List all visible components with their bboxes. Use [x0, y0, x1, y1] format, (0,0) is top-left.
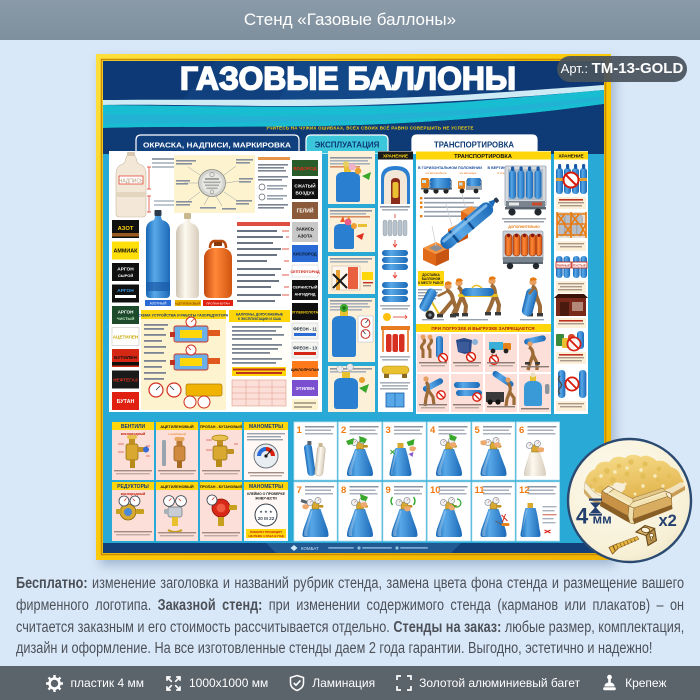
svg-text:кислородный: кислородный	[121, 492, 146, 496]
svg-text:ВЕНТИЛИ: ВЕНТИЛИ	[121, 424, 146, 430]
svg-text:МАНОМЕТРЫ: МАНОМЕТРЫ	[249, 424, 283, 430]
svg-text:ФРЕОН - 13: ФРЕОН - 13	[293, 346, 317, 351]
svg-text:АРГОН: АРГОН	[117, 288, 134, 294]
svg-text:ВОДОРОД: ВОДОРОД	[293, 166, 317, 171]
svg-text:20 III 22: 20 III 22	[258, 516, 275, 521]
svg-text:В ГОРИЗОНТАЛЬНОМ ПОЛОЖЕНИИ: В ГОРИЗОНТАЛЬНОМ ПОЛОЖЕНИИ	[418, 166, 482, 170]
svg-text:АРГОН: АРГОН	[118, 310, 134, 315]
svg-text:1: 1	[297, 425, 303, 436]
svg-text:с мембраной: с мембраной	[168, 432, 186, 436]
svg-text:ЧИСТЫЙ: ЧИСТЫЙ	[117, 316, 135, 321]
svg-text:ПРОПАН-БУТАН: ПРОПАН-БУТАН	[206, 302, 229, 306]
svg-text:ПРИ ПОГРУЗКЕ И ВЫГРУЗКЕ ЗАПРЕЩ: ПРИ ПОГРУЗКЕ И ВЫГРУЗКЕ ЗАПРЕЩАЕТСЯ	[431, 326, 534, 331]
svg-text:ЗАКИСЬ: ЗАКИСЬ	[296, 227, 314, 232]
svg-text:УГЛЕКИСЛОТА: УГЛЕКИСЛОТА	[292, 311, 319, 315]
svg-text:АРГОН: АРГОН	[117, 267, 134, 273]
svg-text:СХЕМА УСТРОЙСТВА И РАБОТЫ ГАЗО: СХЕМА УСТРОЙСТВА И РАБОТЫ ГАЗОРЕДУКТОРА	[138, 314, 229, 318]
svg-text:ОКРАСКА, НАДПИСИ, МАРКИРОВКА: ОКРАСКА, НАДПИСИ, МАРКИРОВКА	[143, 141, 292, 150]
svg-text:ХРАНЕНИЕ: ХРАНЕНИЕ	[383, 154, 408, 159]
svg-text:К ЭКСПЛУАТАЦИИ И США: К ЭКСПЛУАТАЦИИ И США	[238, 317, 282, 321]
svg-text:2: 2	[341, 425, 346, 436]
svg-text:ПУСТЫЕ: ПУСТЫЕ	[573, 264, 586, 268]
svg-text:ГАЗОВЫЕ БАЛЛОНЫ: ГАЗОВЫЕ БАЛЛОНЫ	[180, 61, 516, 97]
svg-text:НАДПИСЬ: НАДПИСЬ	[119, 179, 144, 185]
svg-text:КИСЛОРОД: КИСЛОРОД	[293, 252, 317, 257]
svg-text:КЛЕЙМО О ПРОВЕРКЕ: КЛЕЙМО О ПРОВЕРКЕ	[247, 492, 285, 496]
svg-text:АММИАК: АММИАК	[114, 249, 139, 255]
svg-text:ЭКСПЛУАТАЦИЯ: ЭКСПЛУАТАЦИЯ	[315, 141, 380, 150]
svg-text:ВОЗДУХ: ВОЗДУХ	[296, 191, 316, 196]
svg-text:7: 7	[297, 485, 302, 496]
svg-text:3: 3	[386, 425, 391, 436]
svg-text:СЖАТЫЙ: СЖАТЫЙ	[294, 182, 315, 189]
svg-text:РЕДУКТОРЫ: РЕДУКТОРЫ	[117, 484, 149, 490]
svg-text:ПОЛНЫЕ: ПОЛНЫЕ	[557, 264, 571, 268]
svg-text:ТРАНСПОРТИРОВКА: ТРАНСПОРТИРОВКА	[454, 154, 512, 160]
svg-text:ГЕЛИЙ: ГЕЛИЙ	[297, 207, 314, 215]
svg-text:УЧИТЕСЬ НА ЧУЖИХ ОШИБКАХ, ВСЕХ: УЧИТЕСЬ НА ЧУЖИХ ОШИБКАХ, ВСЕХ СВОИХ ВСЁ…	[266, 126, 473, 131]
svg-text:ФРЕОН - 11: ФРЕОН - 11	[293, 327, 317, 332]
svg-text:БАЛЛОНЫ, ДОПУСКАЕМЫЕ: БАЛЛОНЫ, ДОПУСКАЕМЫЕ	[236, 313, 284, 317]
svg-text:ЦИКЛОПРОПАН: ЦИКЛОПРОПАН	[291, 368, 320, 372]
svg-text:К МЕСТУ РАБОТ: К МЕСТУ РАБОТ	[418, 281, 444, 285]
svg-text:на автокаре: на автокаре	[460, 171, 477, 175]
svg-text:АЦЕТИЛЕНОВЫЙ: АЦЕТИЛЕНОВЫЙ	[160, 425, 193, 429]
svg-text:ЖИВУЧЕСТИ: ЖИВУЧЕСТИ	[254, 497, 277, 501]
svg-text:АЦЕТИЛЕНОВЫЙ: АЦЕТИЛЕНОВЫЙ	[175, 302, 201, 306]
svg-text:НЕ РЕЖЕ 1 РАЗА В ГОД: НЕ РЕЖЕ 1 РАЗА В ГОД	[249, 534, 285, 538]
svg-text:АЗОТА: АЗОТА	[298, 234, 314, 239]
svg-text:★ ★ ★: ★ ★ ★	[259, 509, 273, 514]
svg-text:4: 4	[576, 504, 589, 529]
svg-text:АЗОТ: АЗОТ	[118, 226, 134, 232]
svg-text:СЕПТЕФТОРИД: СЕПТЕФТОРИД	[290, 270, 319, 274]
svg-text:НЕФТЕГАЗ: НЕФТЕГАЗ	[113, 378, 138, 383]
svg-text:АЦЕТИЛЕНОВЫЙ: АЦЕТИЛЕНОВЫЙ	[160, 485, 193, 489]
svg-text:АНГИДРИД: АНГИДРИД	[294, 293, 315, 297]
svg-text:АЦЕТИЛЕН: АЦЕТИЛЕН	[113, 335, 139, 340]
svg-text:на автомобиле: на автомобиле	[426, 171, 447, 175]
svg-text:АЗОТНЫЙ: АЗОТНЫЙ	[150, 302, 167, 306]
svg-text:ПРОПАН - БУТАНОВЫЙ: ПРОПАН - БУТАНОВЫЙ	[200, 425, 242, 429]
svg-text:4: 4	[430, 425, 436, 436]
svg-text:ДОПОЛНИТЕЛЬНО: ДОПОЛНИТЕЛЬНО	[508, 225, 540, 229]
svg-text:5: 5	[475, 425, 481, 436]
svg-text:ХРАНЕНИЕ: ХРАНЕНИЕ	[558, 154, 583, 159]
svg-text:ТРАНСПОРТИРОВКА: ТРАНСПОРТИРОВКА	[434, 141, 514, 150]
svg-text:МАНОМЕТРЫ: МАНОМЕТРЫ	[249, 484, 283, 490]
svg-text:БУТИЛЕН: БУТИЛЕН	[114, 355, 137, 361]
svg-text:6: 6	[519, 425, 524, 436]
svg-text:мм: мм	[593, 512, 612, 527]
svg-text:8: 8	[341, 485, 346, 496]
svg-text:СЕРНИСТЫЙ: СЕРНИСТЫЙ	[293, 286, 318, 290]
svg-text:СЫРОЙ: СЫРОЙ	[118, 273, 134, 278]
svg-text:ЭТИЛЕН: ЭТИЛЕН	[296, 386, 316, 391]
svg-text:x2: x2	[659, 512, 677, 530]
svg-text:БУТАН: БУТАН	[117, 399, 135, 405]
svg-text:ПРОПАН - БУТАНОВЫЙ: ПРОПАН - БУТАНОВЫЙ	[200, 485, 242, 489]
svg-text:КОМБАТ: КОМБАТ	[301, 546, 319, 551]
svg-text:9: 9	[386, 485, 391, 496]
